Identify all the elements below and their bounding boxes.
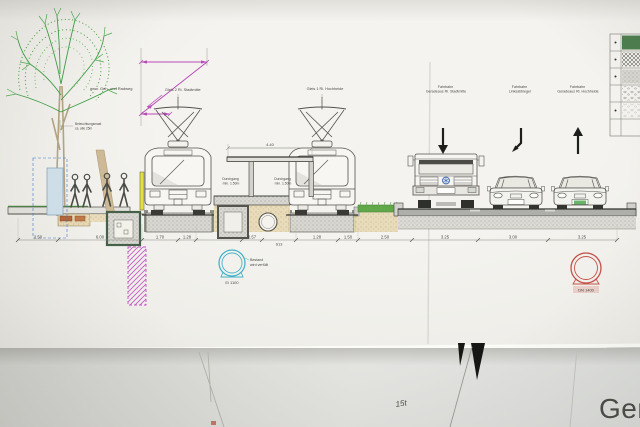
photo-of-plan: gem. Geh- und Radweg Beleuchtungsmast ca…: [0, 0, 640, 427]
platform-slab: [214, 196, 290, 205]
station-marker: S13: [276, 243, 283, 247]
dim-value: 2.50: [34, 234, 43, 239]
dim-value: 1.28: [313, 234, 322, 239]
lane-label-3: Fahrbahn Geradeaus Ri. Hochheide: [557, 85, 598, 94]
track-right-label: Gleis 1 Ri. Hochheide: [307, 87, 344, 91]
trackbed-right: [290, 213, 354, 232]
dim-value: 1.50: [344, 234, 353, 239]
dim-value: 6.00: [96, 234, 105, 239]
legend-table: [610, 34, 640, 136]
lane-arrows: [438, 127, 583, 154]
sewer-new: DN 1400: [571, 253, 601, 293]
tram-right: [286, 97, 358, 215]
legend-stipple-dense: [622, 70, 640, 84]
dim-value: 3.00: [509, 234, 518, 239]
sewer-new-name: DN 1400: [578, 288, 595, 293]
green-license-plate: [574, 201, 586, 205]
plan-drawing: gem. Geh- und Radweg Beleuchtungsmast ca…: [0, 0, 640, 427]
tram-left: [142, 97, 214, 215]
dim-value: 3.25: [441, 234, 450, 239]
pedestrians: [71, 173, 128, 207]
sewer-existing-note2: wird verfüllt: [250, 263, 268, 267]
background-title: Gem: [599, 393, 640, 424]
dim-value: 2.50: [381, 234, 390, 239]
sewer-existing-name: Ei 1100: [225, 280, 239, 285]
legend-stipple-sparse: [622, 87, 640, 101]
passage-label-right: Durchgang min. 1.50m: [274, 177, 292, 186]
clearance-diagram: [139, 48, 209, 126]
shelter-column-left: [249, 162, 254, 197]
roof-span-dim: 4.40: [266, 142, 275, 147]
passage-label-left: Durchgang min. 1.50m: [222, 177, 240, 186]
car-left: [488, 176, 545, 209]
shelter-roof: [227, 157, 313, 162]
handwritten-note: 15t: [395, 398, 408, 409]
lower-sheet-lines: [199, 347, 577, 427]
track-left-label: Gleis 2 Ri. Stadtmitte: [165, 88, 201, 92]
track-centerlines: [178, 94, 322, 112]
legend-dots: [622, 104, 640, 118]
trackbed-left: [146, 213, 212, 232]
truck: [408, 154, 484, 208]
roadway: [398, 209, 636, 216]
red-speck: [211, 421, 216, 425]
shelter-column-right: [309, 162, 314, 197]
grass-verge: [358, 205, 398, 212]
footpath-label: gem. Geh- und Radweg: [90, 86, 132, 91]
dim-value: 1.70: [156, 234, 165, 239]
sewer-existing-note1: Bestand: [250, 258, 263, 262]
svg-text:Beleuchtungsmast: Beleuchtungsmast: [75, 122, 101, 126]
dim-value: 0.57: [248, 234, 257, 239]
legend-crosshatch: [622, 53, 640, 67]
mast-note: Beleuchtungsmast ca. alle 25m: [60, 120, 101, 133]
utility-cabinet: [47, 168, 63, 215]
lane-label-1: Fahrbahn Geradeaus Ri. Stadtmitte: [426, 85, 466, 94]
signal-post: [140, 172, 144, 210]
sheet-pile-hatch: [128, 247, 146, 305]
lane-label-2: Fahrbahn Linksabbieger: [509, 85, 532, 94]
legend-solid-green: [622, 36, 640, 50]
dim-value: 1.28: [183, 234, 192, 239]
svg-text:ca. alle 25m: ca. alle 25m: [75, 127, 93, 131]
sewer-existing: Ei 1100 Bestand wird verfüllt: [219, 250, 268, 285]
left-turn-arrow-icon: [516, 128, 521, 148]
dim-value: 3.25: [578, 234, 587, 239]
